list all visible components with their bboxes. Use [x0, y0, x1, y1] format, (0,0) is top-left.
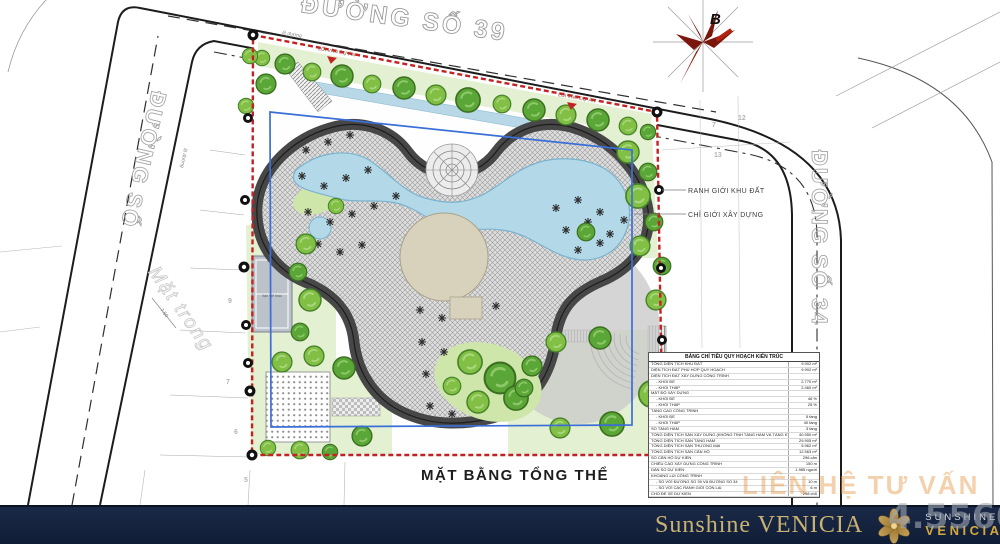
- site-plan-canvas: Sân thể thao: [0, 0, 1000, 505]
- lot-number: 13: [714, 152, 722, 159]
- spiral-walkway: [426, 144, 478, 196]
- watermark-phone: 4.5566: [888, 497, 1000, 537]
- planning-table-title: BẢNG CHỈ TIÊU QUY HOẠCH KIẾN TRÚC: [649, 353, 819, 362]
- site-plan-drawing: Sân thể thao: [0, 0, 1000, 505]
- lot-number: 12: [738, 115, 746, 122]
- curb-label-2: lề đường: [179, 148, 188, 169]
- lot-number: 7: [226, 379, 230, 386]
- paved-plaza: [266, 372, 330, 442]
- road-label-top: ĐƯỜNG SỐ 39: [299, 0, 510, 47]
- lot-number: 7: [712, 122, 716, 129]
- lot-number: 9: [228, 298, 232, 305]
- footer-banner: Sunshine VENICIA SUNSHINE VENICIA: [0, 505, 1000, 544]
- brand-wordmark: Sunshine VENICIA: [655, 512, 863, 539]
- page: { "plan": { "title": "MẶT BẰNG TỔNG THỂ"…: [0, 0, 1000, 544]
- plan-title: MẶT BẰNG TỔNG THỂ: [330, 467, 700, 484]
- lot-number: 5: [244, 477, 248, 484]
- construction-label: CHỈ GIỚI XÂY DỰNG: [688, 210, 763, 219]
- boundary-label: RANH GIỚI KHU ĐẤT: [688, 185, 765, 195]
- compass-rose: B: [653, 0, 753, 92]
- court-label: Sân thể thao: [262, 294, 282, 298]
- lot-number: 6: [234, 429, 238, 436]
- road-label-right: ĐƯỜNG SỐ 34: [807, 150, 833, 326]
- north-label: B: [710, 11, 721, 28]
- road-label-left: ĐƯỜNG SỐ: [116, 89, 173, 231]
- adjacent-parcel-text: Mặt trong: [144, 263, 218, 356]
- central-circle: [400, 213, 488, 301]
